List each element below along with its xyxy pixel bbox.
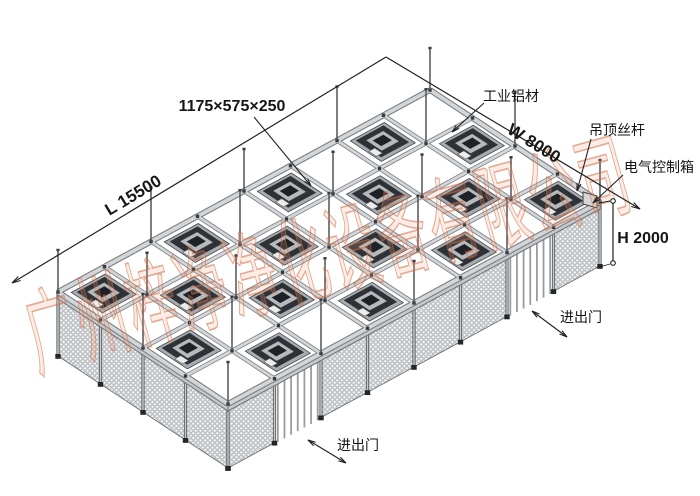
post-foot (551, 289, 556, 294)
label-aluminum-profile: 工业铝材 (483, 88, 539, 104)
post-foot (365, 390, 370, 395)
post-foot (225, 466, 230, 471)
connector-plate (366, 327, 369, 330)
label-height-dimension: H 2000 (617, 230, 669, 247)
h-dim-top-marker (611, 199, 616, 204)
label-door-bottom: 进出门 (337, 437, 379, 453)
connector-plate (184, 374, 187, 377)
post-foot (272, 441, 277, 446)
connector-plate (273, 377, 276, 380)
connector-plate (378, 167, 381, 170)
connector-plate (471, 116, 474, 119)
post-foot (504, 315, 509, 320)
label-ffu-size: 1175×575×250 (179, 98, 286, 115)
post-foot (183, 438, 188, 443)
isometric-cleanroom-diagram: 广州梓净净化设备有限公司L 15500W 80001175×575×250工业铝… (0, 0, 700, 496)
diagram-svg: 广州梓净净化设备有限公司L 15500W 80001175×575×250工业铝… (0, 0, 700, 496)
h-dim-bottom-marker (611, 261, 616, 266)
post-foot (411, 365, 416, 370)
post-foot (318, 416, 323, 421)
connector-plate (382, 114, 385, 117)
post-foot (98, 382, 103, 387)
post-foot (458, 340, 463, 345)
connector-plate (196, 215, 199, 218)
label-electrical-box: 电气控制箱 (624, 159, 694, 175)
label-ceiling-rod: 吊顶丝杆 (589, 122, 645, 138)
connector-plate (459, 276, 462, 279)
label-door-right: 进出门 (560, 309, 602, 325)
connector-plate (289, 164, 292, 167)
post-foot (140, 410, 145, 415)
